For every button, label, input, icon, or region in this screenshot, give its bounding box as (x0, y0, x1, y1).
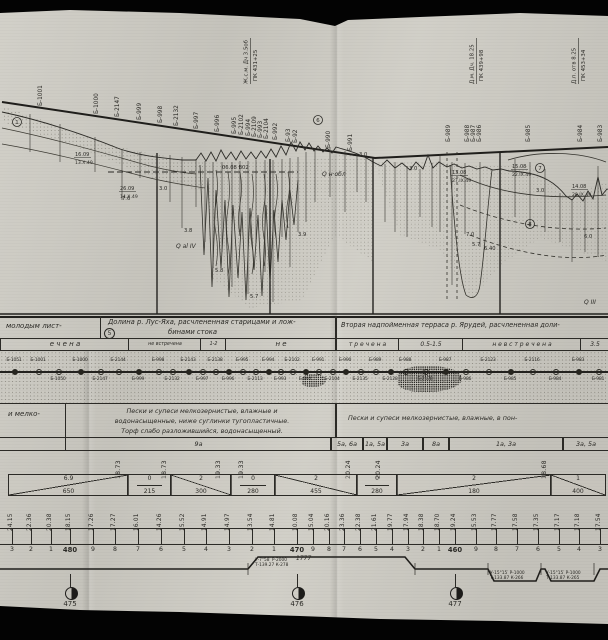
ruler-tick (496, 528, 497, 544)
circled-number-text: 6 (316, 118, 320, 124)
plan-borehole-marker (403, 369, 409, 375)
borehole-label: Б-999 (137, 103, 143, 120)
depth-label: 3.0 (536, 188, 544, 194)
plan-borehole-marker (98, 369, 104, 375)
circled-number-text: 7 (538, 166, 541, 172)
gradient-box: 0280 (230, 474, 276, 496)
plan-borehole-marker (423, 369, 429, 375)
plan-borehole-label: Б-2113 (242, 377, 268, 382)
plan-borehole-label: Б-993 (267, 377, 293, 382)
water-date-date: 20.IX.49 (572, 192, 591, 198)
ruler-tick (392, 528, 393, 544)
stipple-mid (205, 152, 373, 308)
borehole-label: Б-2132 (174, 105, 180, 126)
plan-borehole-marker (576, 369, 582, 375)
ruler-tick (313, 528, 314, 544)
ruler-tick (579, 528, 580, 544)
plan-borehole-marker (116, 369, 122, 375)
plan-borehole-marker (463, 369, 469, 375)
km-post-number: 475 (55, 600, 85, 608)
plan-borehole-label: Б-2138 (202, 358, 228, 363)
ruler-tick (184, 528, 185, 544)
gradient-flat-line (365, 485, 389, 486)
plan-borehole-marker (36, 369, 42, 375)
plan-borehole-marker (213, 369, 219, 375)
ruler-tick (439, 528, 440, 544)
plan-borehole-label: Б-2144 (105, 358, 131, 363)
gradient-length: 300 (171, 488, 231, 495)
ruler-tick (70, 528, 71, 544)
plan-borehole-label: Б-1050 (45, 377, 71, 382)
permafrost-cell: 3.5 (580, 338, 608, 350)
curve-label-line2: Т-133.87 К-266 (490, 576, 525, 581)
gradient-box: 2455 (274, 474, 358, 496)
km-post-stem (455, 574, 456, 587)
ruler-tick (206, 528, 207, 544)
soil-center-l2: водонасыщенные, ниже суглинки тугопласти… (115, 417, 289, 425)
water-date-value: 15.08 (512, 164, 526, 170)
structure-label-line1: Д.п. отв 8.25 (572, 48, 578, 84)
borehole-label: Б-984 (578, 125, 584, 142)
gradient-box: 1400 (550, 474, 606, 496)
km-post-number: 477 (440, 600, 470, 608)
ruler-tick (229, 528, 230, 544)
borehole-label: Б-92 (293, 129, 299, 143)
borehole-label: Б-985 (526, 125, 532, 142)
borehole-label: Б-93 (286, 128, 292, 142)
plan-borehole-marker (78, 369, 84, 375)
gradient-length: 180 (397, 488, 551, 495)
soil-zone-cell: 9а (65, 438, 332, 450)
gradient-length: 455 (275, 488, 357, 495)
rule-4 (0, 403, 608, 404)
strat-label: Q al IV (176, 243, 197, 250)
plan-borehole-label: Б-2132 (159, 377, 185, 382)
water-date-value: 13.08 (452, 170, 466, 176)
structure-label-line2: ПК 439+98 (479, 49, 485, 81)
soil-center-l1: Пески и супеси мелкозернистые, влажные и (126, 407, 277, 415)
plan-borehole-label: Б-2116 (519, 358, 545, 363)
plan-borehole-marker (240, 369, 246, 375)
plan-borehole-marker (553, 369, 559, 375)
circled-number-text: 1 (15, 120, 18, 126)
ruler-tick (455, 528, 456, 544)
plan-borehole-label: Б-2104 (319, 377, 345, 382)
ruler-tick (360, 528, 361, 544)
ruler-tick (51, 528, 52, 544)
geomorph-right-text: Вторая надпойменная терраса р. Ярудей, р… (341, 321, 560, 329)
curve-label-line2: Т-133.87 К-265 (546, 576, 581, 581)
permafrost-cell: н е в с т р е ч е н а (462, 338, 581, 350)
plan-borehole-label: Б-1051 (1, 358, 27, 363)
row1-divider-1 (100, 316, 101, 338)
soil-zone-cell: 5а, 6а (330, 438, 364, 450)
plan-borehole-label: Б-2135 (347, 377, 373, 382)
gradient-box: 6.9650 (8, 474, 129, 496)
depth-label: 5.7 (472, 242, 480, 248)
permafrost-cell: не встречена (128, 338, 201, 350)
gradient-box: 2180 (396, 474, 552, 496)
plan-borehole-marker (486, 369, 492, 375)
plan-borehole-label: Б-998 (145, 358, 171, 363)
plan-borehole-marker (343, 369, 349, 375)
km-post-symbol (65, 587, 78, 600)
depth-label: 3.0 (359, 152, 367, 158)
water-date-value: 26.09 (120, 186, 134, 192)
ruler-tick (329, 528, 330, 544)
ruler-tick (344, 528, 345, 544)
borehole-label: Б-992 (273, 123, 279, 140)
plan-borehole-label: Б-992 (292, 377, 318, 382)
plan-borehole-marker (56, 369, 62, 375)
plan-borehole-marker (266, 369, 272, 375)
borehole-label: Б-996 (215, 115, 221, 132)
ruler-tick (161, 528, 162, 544)
plan-borehole-marker (226, 369, 232, 375)
plan-borehole-marker (303, 369, 309, 375)
plan-borehole-label: Б-984 (542, 377, 568, 382)
plan-borehole-label: Б-991 (305, 358, 331, 363)
gradient-value: 0 (128, 475, 171, 482)
ruler-bottom (0, 544, 608, 545)
water-date-date: 22.IX.49 (512, 172, 531, 178)
plan-borehole-marker (530, 369, 536, 375)
ruler-tick (252, 528, 253, 544)
km-post-symbol (450, 587, 463, 600)
plan-borehole-label: Б-987 (432, 358, 458, 363)
plan-borehole-label: Б-999 (125, 377, 151, 382)
curve-label: У-15°15′ Р-1000Т-133.87 К-266 (490, 571, 525, 581)
gradient-value: 1 (551, 475, 605, 482)
circled-number-text: 8 (528, 222, 532, 228)
permafrost-cell: т р е ч е н а (335, 338, 399, 350)
plan-borehole-marker (156, 369, 162, 375)
tangent-distance: 1777 (296, 555, 311, 562)
borehole-label: Б-2147 (115, 96, 121, 117)
structure-label: Д.п. отв 8.25ПК 453+34 (572, 38, 588, 84)
structure-label-line2: ПК 453+34 (581, 49, 587, 81)
ruler-tick (600, 528, 601, 544)
borehole-label: Б-991 (348, 134, 354, 151)
km-post-number: 476 (282, 600, 312, 608)
gradient-value: 2 (275, 475, 357, 482)
ruler-tick (93, 528, 94, 544)
depth-label: 3.9 (298, 232, 306, 238)
depth-label: 6.0 (584, 234, 592, 240)
structure-label: Д.м. Дч. 18.25ПК 439+98 (470, 38, 486, 84)
water-line-label: 06.08 В02 (222, 165, 249, 171)
ruler-tick (538, 528, 539, 544)
ruler-tick (408, 528, 409, 544)
structure-label: Ж.с.м. Дч 3.5обПК 431+25 (244, 38, 260, 84)
ruler-tick (115, 528, 116, 544)
soil-zone-cell: 1а, 5а (362, 438, 388, 450)
plan-borehole-marker (170, 369, 176, 375)
permafrost-cell: 0.5-1.5 (398, 338, 463, 350)
structure-label-line2: ПК 431+25 (253, 50, 259, 81)
plan-borehole-label: Б-1000 (67, 358, 93, 363)
plan-borehole-marker (596, 369, 602, 375)
ruler-tick (31, 528, 32, 544)
gradient-length: 215 (128, 488, 171, 495)
gradient-box: 2300 (170, 474, 232, 496)
geomorph-center-line2: бинами стока (168, 328, 217, 336)
plan-borehole-marker (278, 369, 284, 375)
borehole-label: Б-995 (232, 117, 238, 134)
gradient-box: 0215 (127, 474, 172, 496)
soil-center-text: Пески и супеси мелкозернистые, влажные и… (72, 406, 332, 436)
ruler-tick (297, 528, 298, 544)
soil-zone-cell: 3а, 5а (562, 438, 608, 450)
permafrost-cell: 1-2 (200, 338, 226, 350)
gradient-flat-line (137, 485, 163, 486)
borehole-label: Б-983 (598, 125, 604, 142)
ruler-tick (517, 528, 518, 544)
ruler-tick (559, 528, 560, 544)
cross-section-drawing: Б-1001Б-1000Б-2147Б-999Б-998Б-2132Б-997Б… (0, 0, 608, 316)
borehole-label: Б-998 (158, 106, 164, 123)
plan-borehole-marker (253, 369, 259, 375)
depth-label: 5.7 (250, 294, 258, 300)
water-date-value: 16.09 (75, 152, 89, 158)
plan-borehole-label: Б-990 (332, 358, 358, 363)
depth-label: 3.8 (184, 228, 192, 234)
km-post-symbol (292, 587, 305, 600)
borehole-label: Б-1001 (38, 85, 44, 106)
plan-borehole-label: Б-994 (255, 358, 281, 363)
curve-label: У-15°15′ Р-1000Т-133.87 К-265 (546, 571, 581, 581)
depth-label: 3.0 (409, 166, 417, 172)
ruler-tick (274, 528, 275, 544)
soil-left-text: и мелко- (8, 410, 40, 418)
plan-borehole-marker (508, 369, 514, 375)
borehole-label: Б-2102 (239, 114, 245, 135)
plan-borehole-marker (388, 369, 394, 375)
gradient-flat-line (240, 485, 266, 486)
soil-divider-2 (335, 403, 337, 437)
plan-borehole-label: Б-983 (565, 358, 591, 363)
plan-borehole-label: Б-985 (497, 377, 523, 382)
geomorph-center-line1: Долина р. Лус-Яха, расчлененная старицам… (108, 318, 296, 326)
gradient-length: 650 (9, 488, 128, 495)
gradient-length: 400 (551, 488, 605, 495)
km-post-stem (297, 574, 298, 587)
soil-zone-cell: 1а, 3а (448, 438, 564, 450)
geomorph-left-text: молодым лист- (6, 322, 62, 330)
plan-borehole-marker (200, 369, 206, 375)
borehole-label: Б-989 (446, 125, 452, 142)
rule-6 (0, 450, 608, 451)
soil-zone-cell: 3а (386, 438, 424, 450)
plan-borehole-label: Б-988 (392, 358, 418, 363)
gradient-value: 0 (357, 475, 397, 482)
strat-label: Q III (584, 299, 596, 306)
soil-right-text: Пески и супеси мелкозернистые, влажные, … (348, 414, 517, 422)
gradient-length: 280 (231, 488, 275, 495)
ruler-tick (476, 528, 477, 544)
band-top-rule (0, 316, 608, 318)
gradient-length: 280 (357, 488, 397, 495)
plan-borehole-label: Б-1001 (25, 358, 51, 363)
plan-borehole-marker (136, 369, 142, 375)
depth-label: 3.0 (159, 186, 167, 192)
borehole-label: Б-2104 (264, 118, 270, 139)
borehole-label: Б-997 (194, 112, 200, 129)
plan-borehole-label: Б-2147 (87, 377, 113, 382)
ruler-tick (12, 528, 13, 544)
water-date-date: 13.X.49 (75, 160, 93, 166)
depth-label: 7.0 (466, 232, 474, 238)
soil-divider-1 (65, 403, 66, 437)
ruler-tick (138, 528, 139, 544)
gradient-box: 0280 (356, 474, 398, 496)
plan-borehole-label: Б-981 (585, 377, 608, 382)
plan-strip: Б-1051Б-1001Б-1050Б-1000Б-2147Б-2144Б-99… (0, 351, 608, 403)
curve-label-line2: Т-139.27 К-278 (255, 563, 288, 568)
soil-zone-cell: 8а (422, 438, 450, 450)
plan-borehole-marker (358, 369, 364, 375)
permafrost-cell: е ч е н а (0, 338, 129, 350)
depth-label: 5.8 (215, 268, 223, 274)
soil-center-l3: Торф слабо разложившийся, водонасыщенный… (121, 427, 283, 435)
strat-label: Q н·обл (322, 171, 346, 178)
plan-borehole-marker (12, 369, 18, 375)
permafrost-cell: н е (225, 338, 336, 350)
water-date-date: 14.X.49 (120, 194, 138, 200)
gradient-value: 2 (171, 475, 231, 482)
gradient-value: 6.9 (9, 475, 128, 482)
terrace-curve-1 (508, 153, 606, 162)
plan-borehole-marker (316, 369, 322, 375)
plan-borehole-marker (330, 369, 336, 375)
water-date-date: 27.IX.49 (452, 178, 471, 184)
borehole-label: Б-990 (326, 131, 332, 148)
plan-borehole-marker (290, 369, 296, 375)
plan-borehole-label: Б-2143 (175, 358, 201, 363)
ruler-tick (423, 528, 424, 544)
scanned-profile-sheet: Б-1001Б-1000Б-2147Б-999Б-998Б-2132Б-997Б… (0, 0, 608, 640)
plan-borehole-label: Б-996 (215, 377, 241, 382)
plan-borehole-label: Б-989 (362, 358, 388, 363)
plan-borehole-label: Б-2178 (412, 377, 438, 382)
depth-label: 6.40 (484, 246, 496, 252)
structure-label-line1: Ж.с.м. Дч 3.5об (244, 39, 250, 84)
paper: Б-1001Б-1000Б-2147Б-999Б-998Б-2132Б-997Б… (0, 0, 608, 640)
plan-borehole-label: Б-995 (229, 358, 255, 363)
borehole-label: Б-986 (477, 125, 483, 142)
plan-borehole-label: Б-2102 (279, 358, 305, 363)
plan-borehole-marker (443, 369, 449, 375)
gradient-value: 2 (397, 475, 551, 482)
plan-borehole-label: Б-986 (452, 377, 478, 382)
plan-borehole-label: Б-2123 (475, 358, 501, 363)
water-date-value: 14.08 (572, 184, 586, 190)
plan-borehole-label: Б-997 (189, 377, 215, 382)
km-post-stem (70, 574, 71, 587)
plan-borehole-label: Б-2128 (377, 377, 403, 382)
gradient-value: 0 (231, 475, 275, 482)
plan-borehole-marker (186, 369, 192, 375)
ruler-tick (376, 528, 377, 544)
plan-borehole-marker (373, 369, 379, 375)
structure-label-line1: Д.м. Дч. 18.25 (470, 44, 476, 84)
curve-label: У-7°58′ Р-2000Т-139.27 К-278 (255, 558, 288, 568)
borehole-label: Б-1000 (94, 93, 100, 114)
